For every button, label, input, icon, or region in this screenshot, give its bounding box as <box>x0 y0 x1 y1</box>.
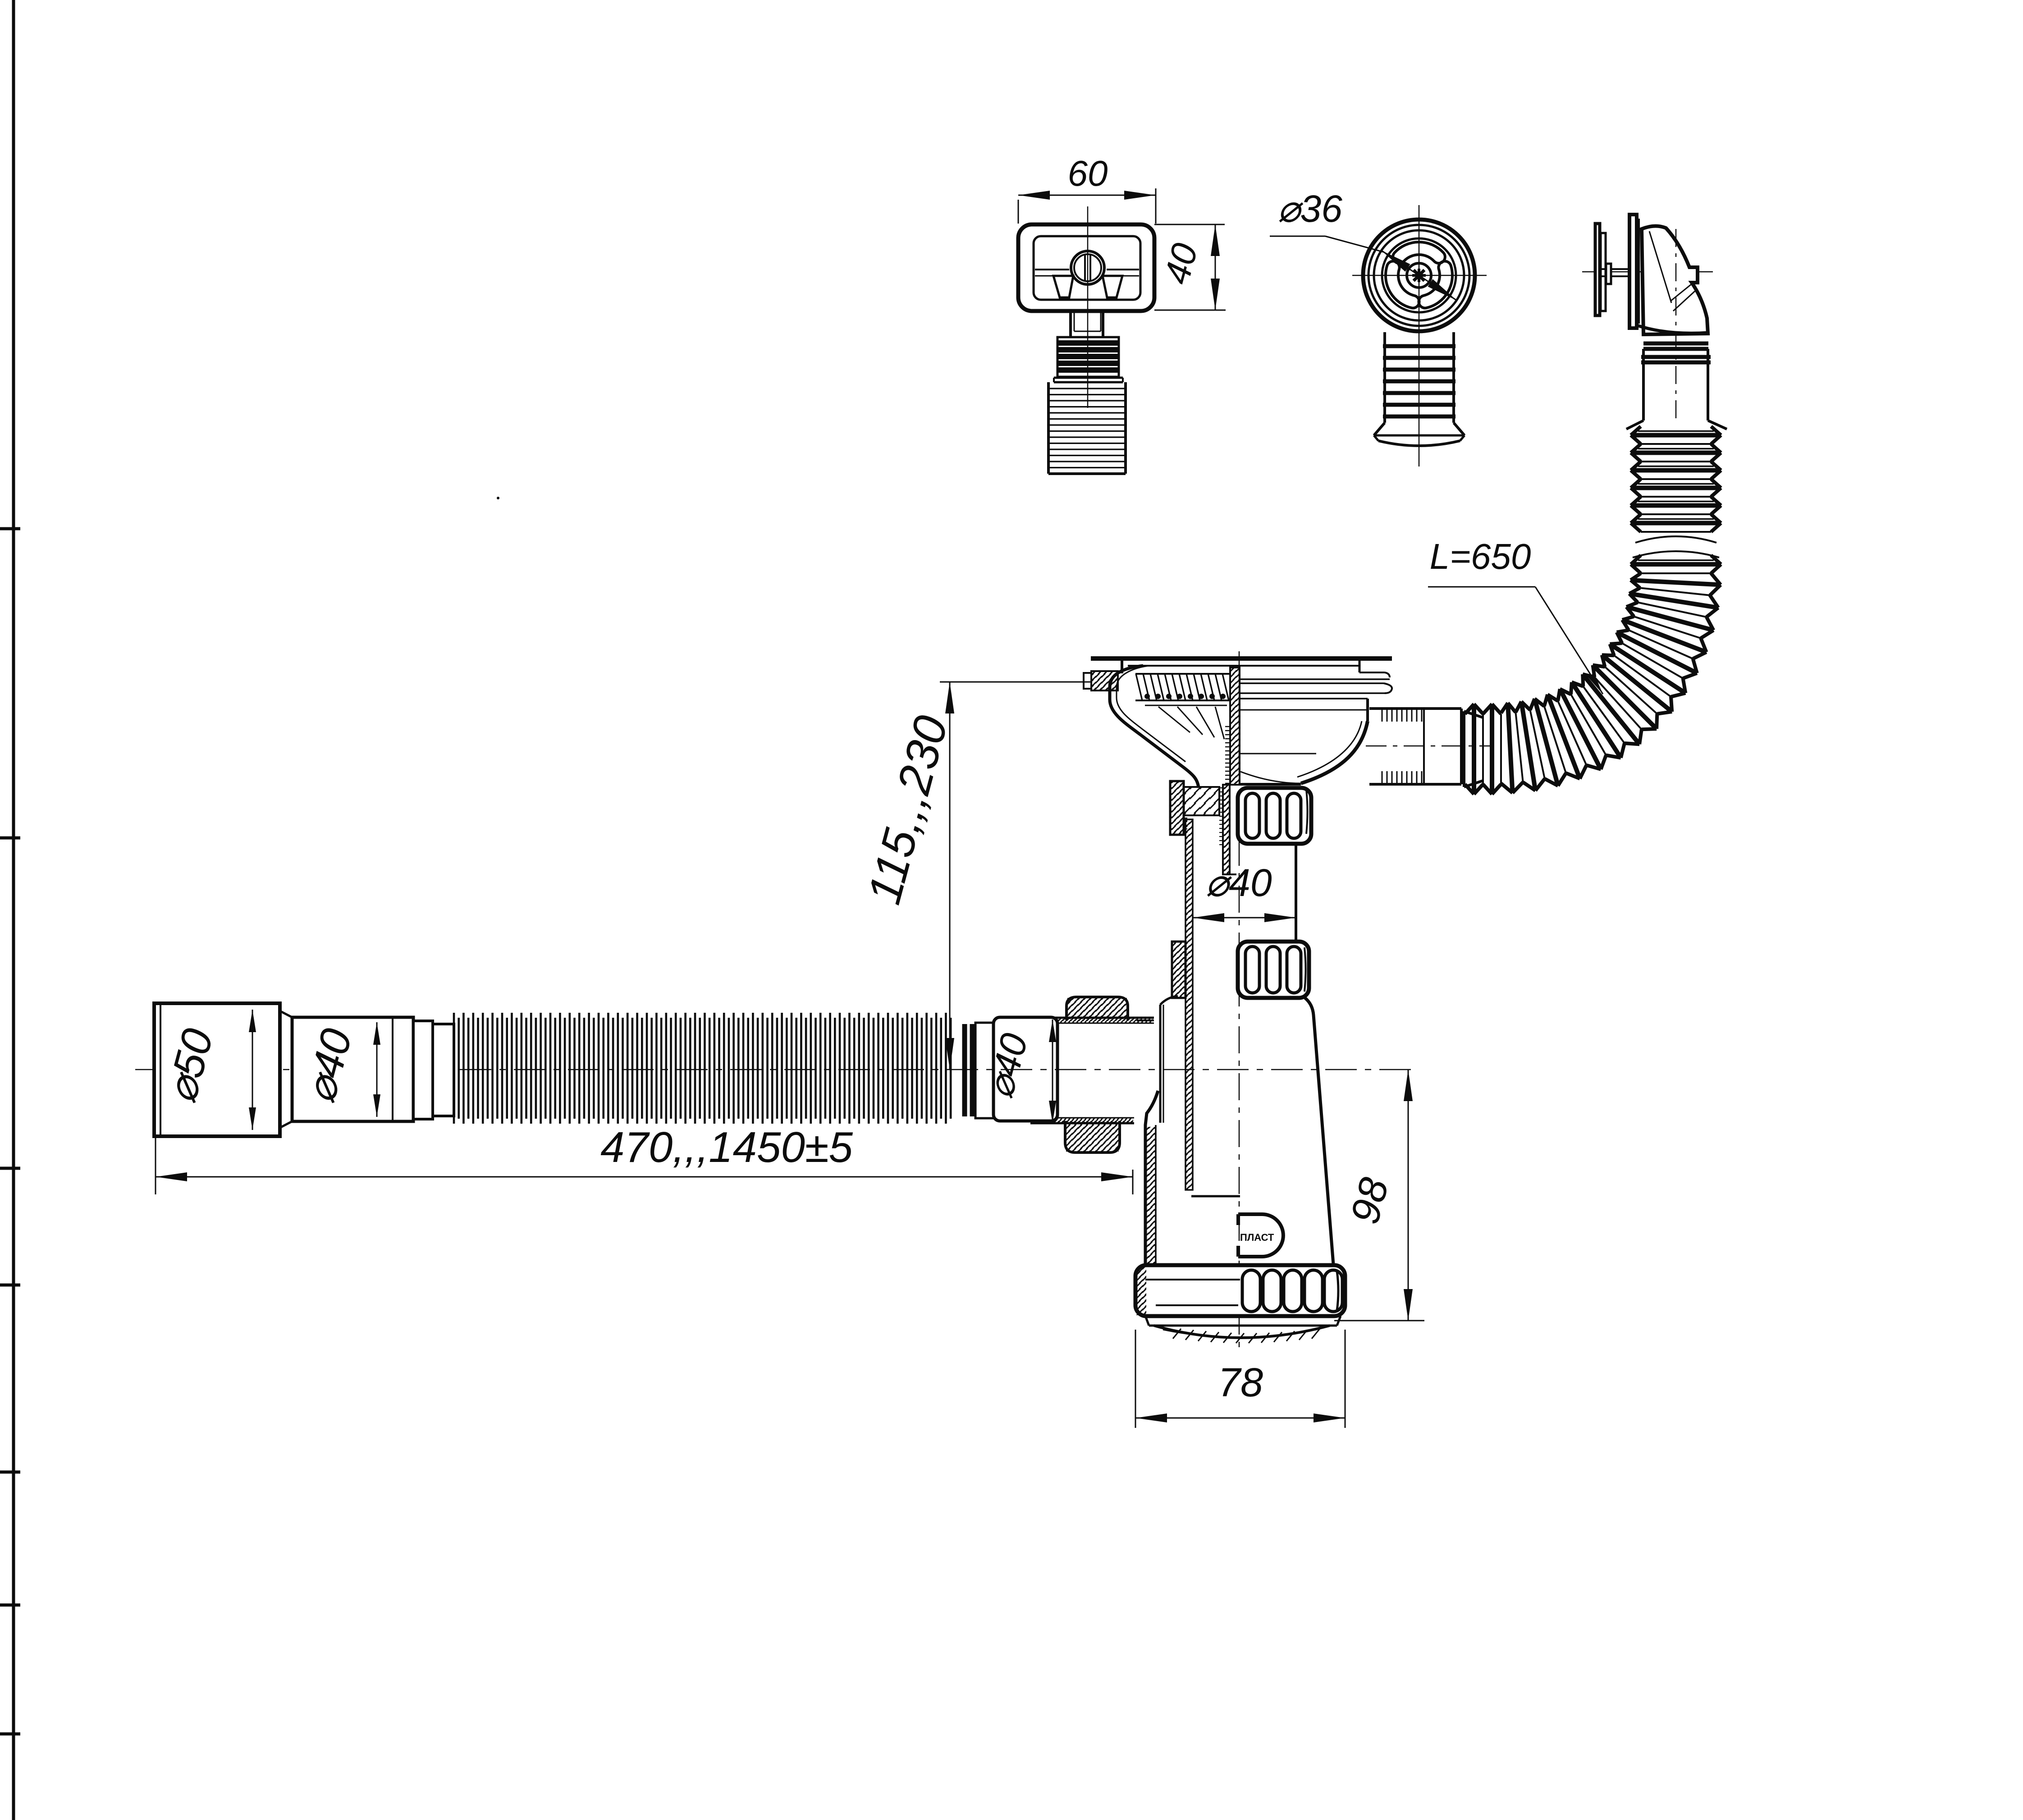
svg-text:⌀40: ⌀40 <box>1205 861 1272 905</box>
svg-text:78: 78 <box>1218 1360 1263 1405</box>
svg-text:⌀36: ⌀36 <box>1277 187 1342 230</box>
svg-text:60: 60 <box>1068 153 1108 193</box>
svg-text:470,,,1450±5: 470,,,1450±5 <box>600 1123 853 1171</box>
svg-text:ПЛАСТ: ПЛАСТ <box>1240 1232 1274 1243</box>
svg-text:L=650: L=650 <box>1430 536 1531 576</box>
